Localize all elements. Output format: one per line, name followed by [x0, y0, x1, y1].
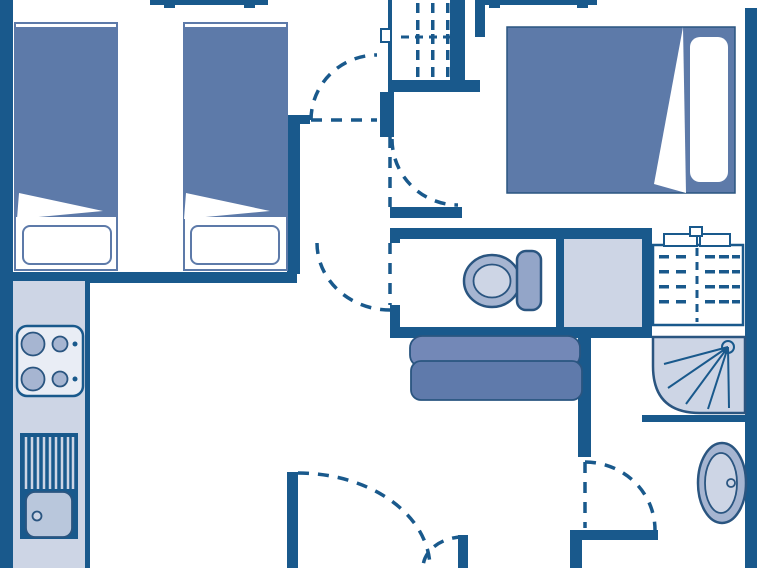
hanger-dash: [416, 67, 420, 77]
kitchen-sink-icon: [20, 433, 78, 539]
bed-blanket: [185, 27, 286, 217]
hanger-dashes: [659, 255, 740, 304]
door-entrance: [298, 473, 463, 568]
shower-icon: [653, 337, 745, 413]
hanger-dash: [719, 285, 729, 289]
double-bed-icon: [507, 27, 735, 193]
wardrobe-right-icon: [653, 227, 743, 325]
burner-small: [53, 372, 68, 387]
wardrobe-knob: [381, 29, 391, 42]
hanger-dash: [676, 300, 686, 304]
door-arc: [311, 55, 377, 120]
hanger-dash: [719, 270, 729, 274]
hanger-dash: [705, 300, 715, 304]
hanger-dash: [719, 255, 729, 259]
window-tick: [577, 4, 588, 8]
hanger-dashes: [416, 3, 450, 77]
door-bedroom: [311, 55, 377, 120]
hanger-dash: [705, 285, 715, 289]
door-arc: [392, 139, 458, 205]
hanger-hook: [431, 34, 435, 44]
hanger-dash: [732, 285, 740, 289]
hanger-dash: [431, 20, 435, 30]
wall-bedroom-right: [287, 124, 300, 274]
wall-shower-bottom: [642, 415, 747, 422]
window-2: [483, 0, 597, 8]
window-tick: [489, 4, 500, 8]
bathroom-wall-left-upper: [390, 228, 400, 243]
hanger-dash: [705, 255, 715, 259]
burner-small: [53, 337, 68, 352]
sofa-icon: [410, 336, 582, 400]
hanger-dash: [446, 50, 450, 60]
hanger-hook: [446, 34, 450, 44]
hanger-dash: [705, 270, 715, 274]
bathroom-wall-top: [390, 228, 652, 239]
door-washroom: [585, 462, 655, 530]
floor-plan-svg: [0, 0, 757, 568]
twin-bed-2-icon: [184, 23, 287, 270]
wardrobe-track: [700, 234, 730, 246]
bathroom-wall-right: [642, 228, 652, 338]
hanger-dash: [431, 50, 435, 60]
wardrobe-top-icon: [381, 0, 480, 92]
burner-large: [22, 368, 45, 391]
sofa-seat: [411, 361, 582, 400]
wardrobe-bottom-wall: [388, 80, 480, 92]
hanger-dash: [732, 255, 740, 259]
door-hall: [390, 137, 458, 207]
wall-entrance-left-post: [287, 472, 298, 568]
hanger-dash: [659, 255, 669, 259]
burner-large: [22, 333, 45, 356]
bed-pillow: [191, 226, 279, 264]
stove-knob: [73, 377, 78, 382]
hanger-dash: [719, 300, 729, 304]
door-arc: [585, 462, 655, 530]
hanger-dash: [676, 255, 686, 259]
hanger-dash: [446, 3, 450, 13]
wall-entrance-right-post: [458, 535, 468, 568]
hanger-dash: [416, 3, 420, 13]
wardrobe-knob: [690, 227, 702, 236]
hanger-dash: [431, 3, 435, 13]
twin-bed-1-icon: [15, 23, 117, 270]
stove-knob: [73, 342, 78, 347]
hanger-dash: [732, 270, 740, 274]
wall-left: [0, 0, 13, 568]
hanger-dash: [659, 270, 669, 274]
bathroom-cabinet: [564, 239, 642, 327]
toilet-cistern: [517, 251, 541, 310]
wall-below-wardrobe: [380, 92, 394, 137]
window-tick: [164, 4, 175, 8]
hanger-dash: [416, 20, 420, 30]
sink-drain: [33, 512, 42, 521]
shower-tray: [653, 337, 745, 413]
toilet-bowl-inner: [474, 265, 511, 298]
hanger-dash: [676, 285, 686, 289]
window-tick: [244, 4, 255, 8]
floor-plan: [0, 0, 757, 568]
door-arc: [317, 243, 390, 310]
wall-top-stub: [475, 0, 485, 37]
hanger-dash: [446, 67, 450, 77]
wall-hall-stub: [390, 207, 462, 218]
window-1: [150, 0, 268, 8]
door-arc-left: [298, 473, 430, 568]
hanger-hook: [416, 34, 420, 44]
wall-bedroom-cap: [287, 115, 310, 124]
wall-washroom-bottom: [580, 530, 658, 540]
hanger-dash: [659, 300, 669, 304]
bed-pillow: [690, 37, 728, 182]
bathroom-divider: [556, 238, 564, 327]
hanger-dash: [416, 50, 420, 60]
basin-faucet: [727, 479, 735, 487]
door-bathroom: [317, 243, 390, 310]
toilet-icon: [464, 251, 541, 310]
hanger-dash: [659, 285, 669, 289]
bed-blanket: [16, 27, 116, 217]
hanger-dash: [446, 20, 450, 30]
kitchen-counter-edge: [85, 281, 90, 568]
hanger-dash: [732, 300, 740, 304]
washbasin-icon: [698, 443, 746, 523]
hanger-dash: [676, 270, 686, 274]
wardrobe-side: [450, 0, 465, 82]
hanger-dash: [431, 67, 435, 77]
stove-icon: [17, 326, 83, 396]
bed-pillow: [23, 226, 111, 264]
